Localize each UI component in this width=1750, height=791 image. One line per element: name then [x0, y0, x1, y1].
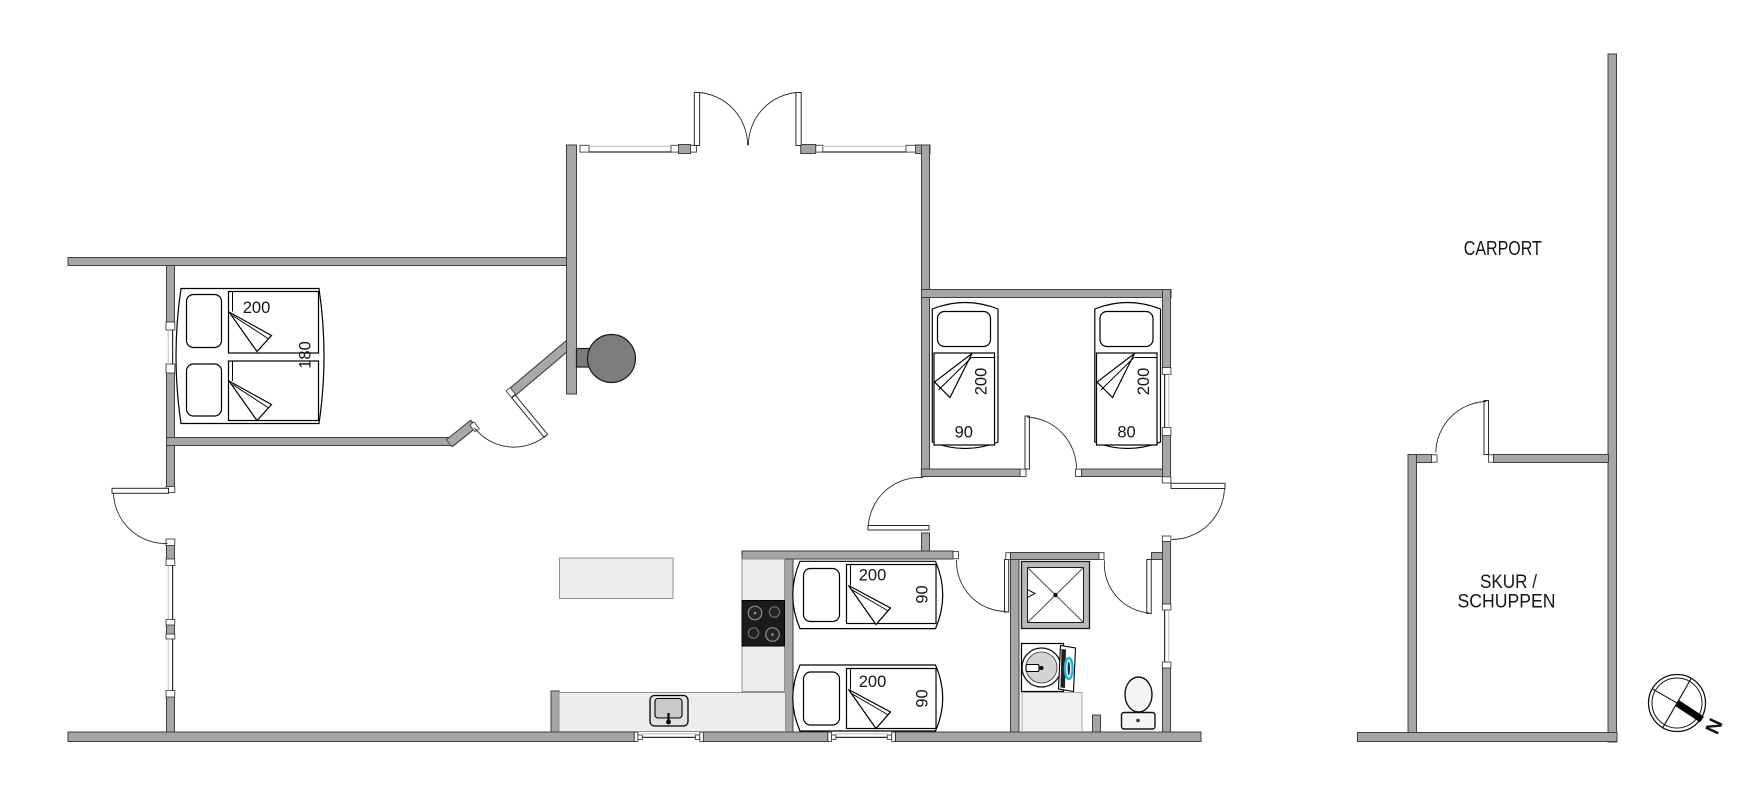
svg-text:CARPORT: CARPORT	[1464, 238, 1542, 260]
svg-text:200: 200	[243, 299, 271, 317]
svg-text:200: 200	[859, 567, 887, 585]
svg-text:SKUR /: SKUR /	[1480, 572, 1538, 593]
svg-text:90: 90	[955, 424, 973, 442]
svg-text:180: 180	[297, 341, 315, 369]
svg-text:80: 80	[1117, 424, 1135, 442]
svg-text:90: 90	[914, 585, 932, 603]
svg-text:200: 200	[973, 368, 991, 396]
svg-text:90: 90	[914, 689, 932, 707]
svg-text:200: 200	[1135, 368, 1153, 396]
svg-text:SCHUPPEN: SCHUPPEN	[1458, 592, 1556, 613]
svg-text:200: 200	[859, 673, 887, 691]
